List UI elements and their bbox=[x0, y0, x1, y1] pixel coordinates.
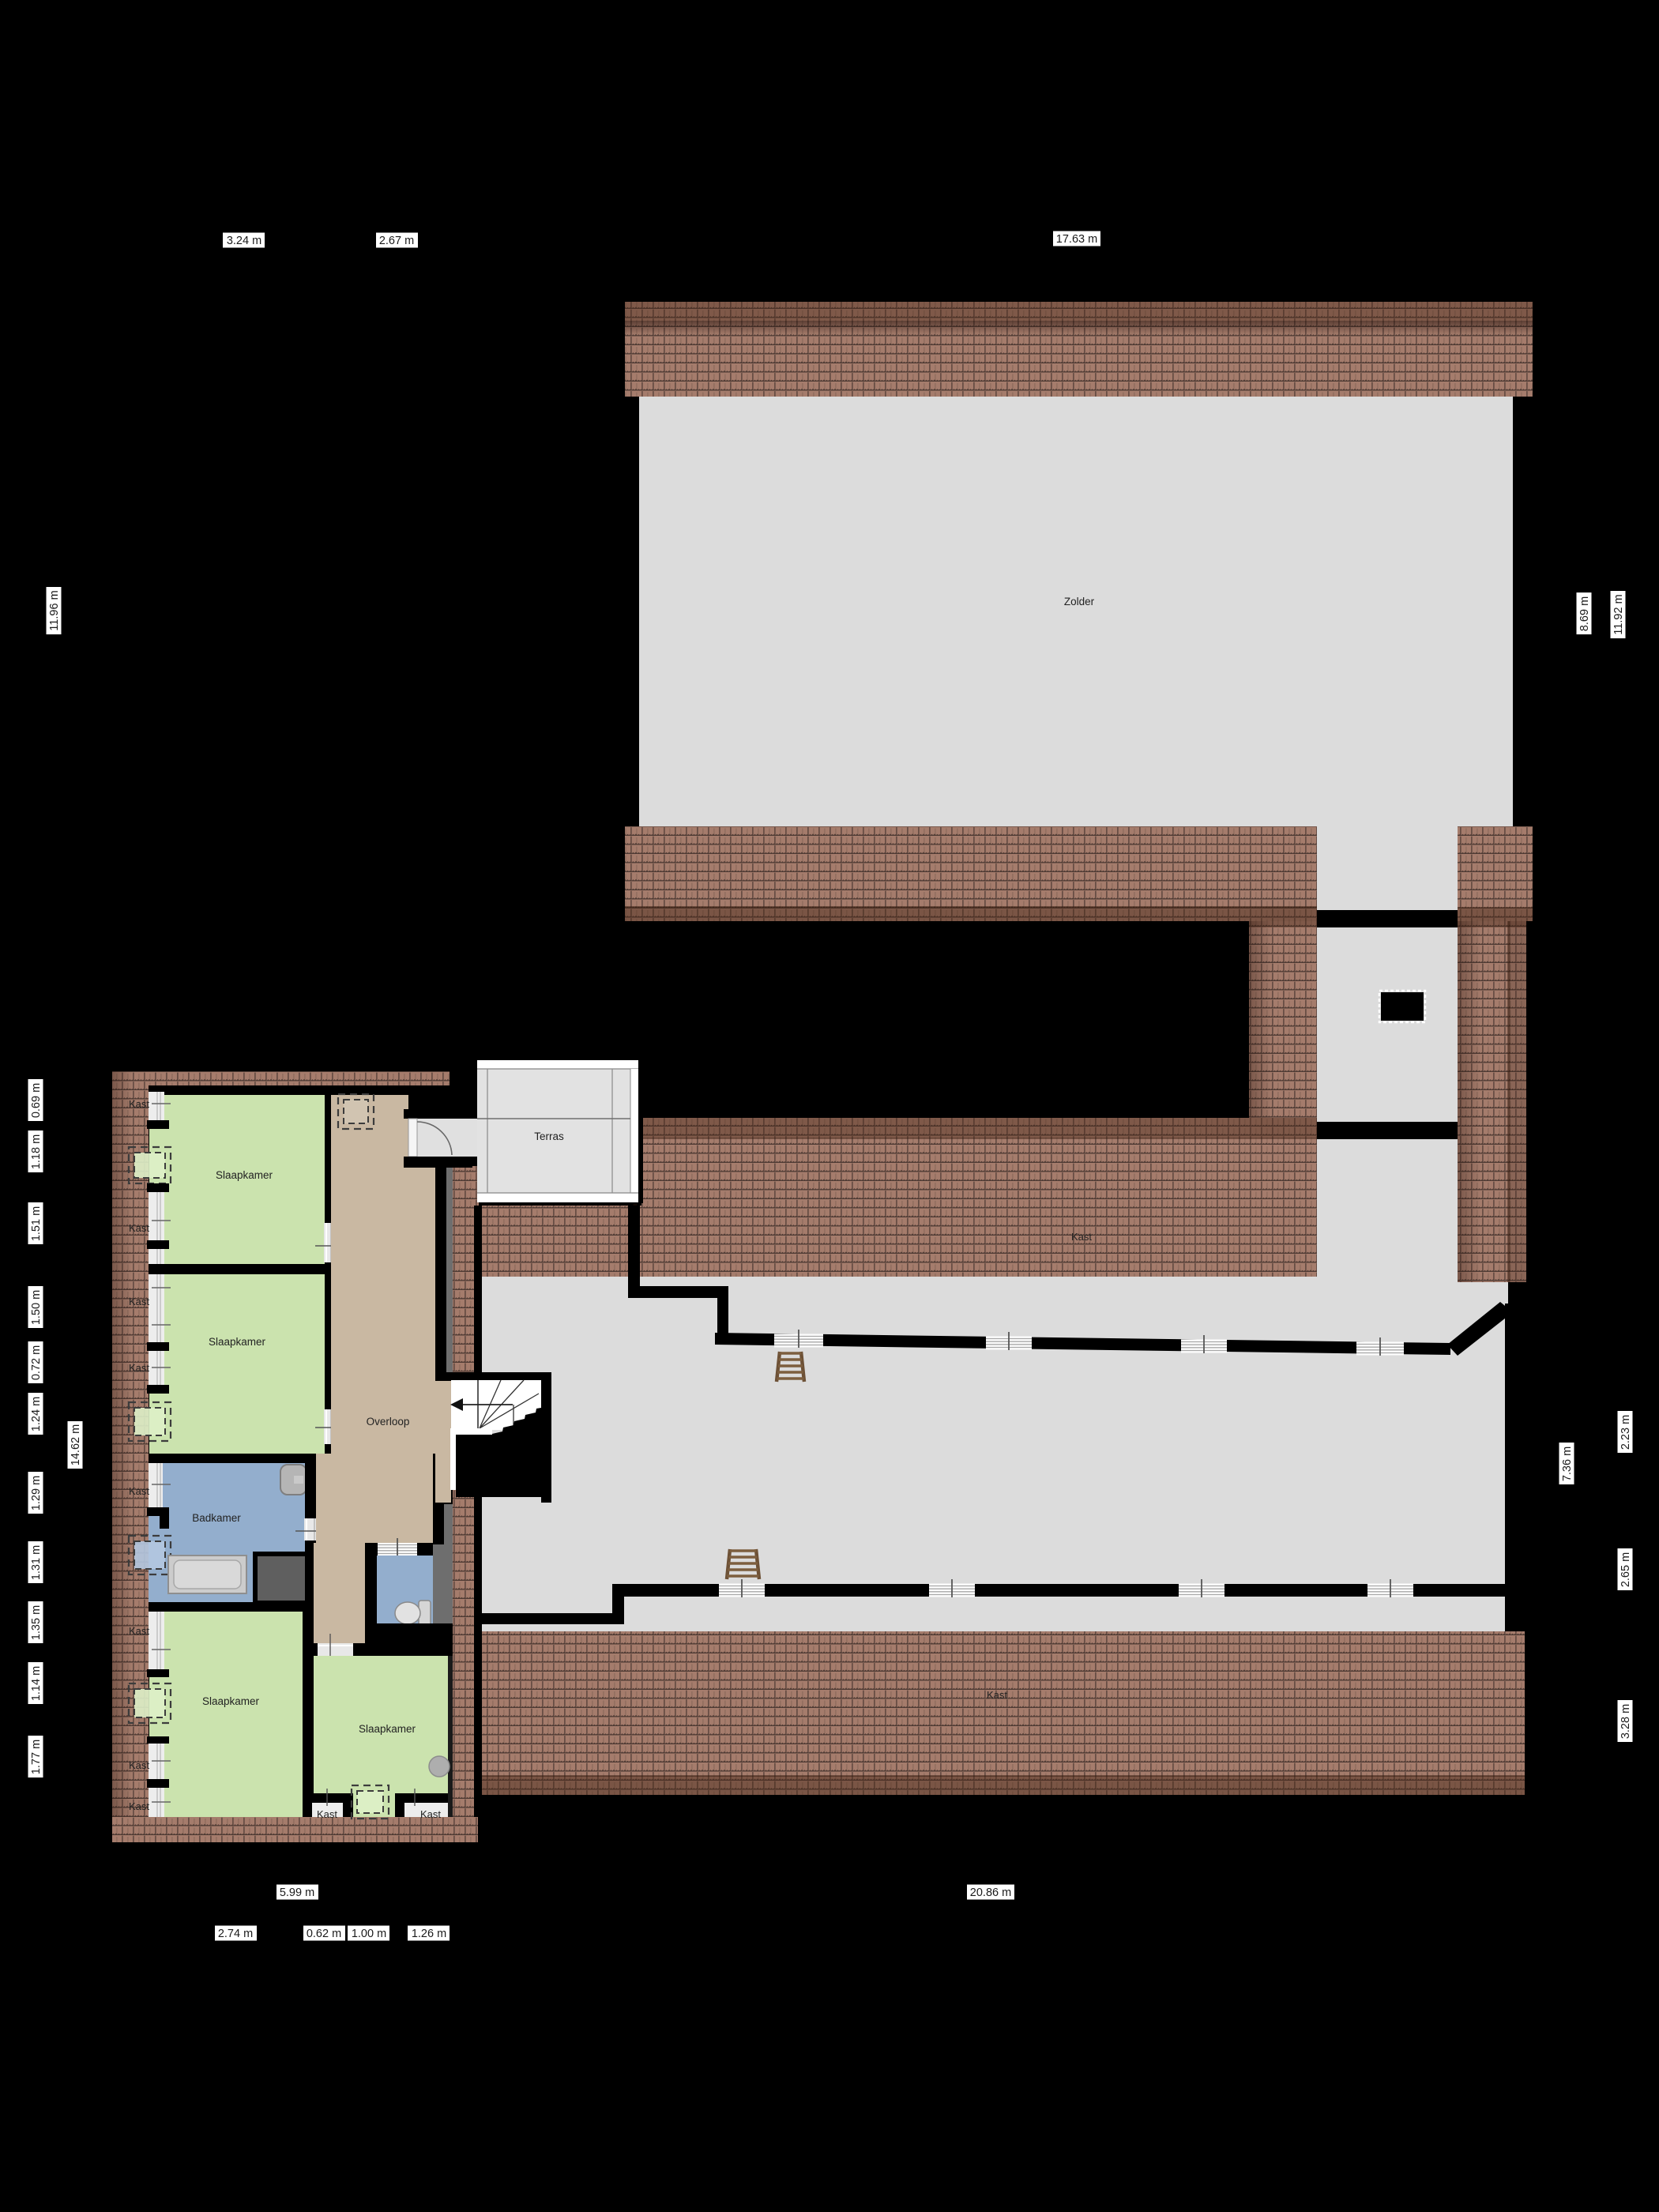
svg-text:Slaapkamer: Slaapkamer bbox=[216, 1169, 273, 1181]
svg-text:Kast: Kast bbox=[129, 1222, 149, 1234]
svg-text:17.63 m: 17.63 m bbox=[1056, 233, 1097, 246]
svg-text:Kast: Kast bbox=[317, 1808, 337, 1820]
svg-text:1.31 m: 1.31 m bbox=[30, 1545, 43, 1580]
svg-text:1.50 m: 1.50 m bbox=[30, 1290, 43, 1325]
svg-text:Terras: Terras bbox=[534, 1130, 564, 1142]
svg-text:Overloop: Overloop bbox=[367, 1416, 410, 1428]
svg-text:2.23 m: 2.23 m bbox=[1619, 1415, 1632, 1450]
svg-text:Kast: Kast bbox=[987, 1689, 1007, 1701]
svg-text:2.67 m: 2.67 m bbox=[379, 235, 414, 247]
svg-text:2.65 m: 2.65 m bbox=[1619, 1552, 1632, 1587]
svg-text:1.77 m: 1.77 m bbox=[30, 1740, 43, 1774]
svg-text:8.69 m: 8.69 m bbox=[1578, 596, 1591, 631]
svg-text:Kast: Kast bbox=[129, 1800, 149, 1812]
svg-text:Slaapkamer: Slaapkamer bbox=[209, 1336, 266, 1348]
svg-text:Slaapkamer: Slaapkamer bbox=[359, 1723, 416, 1735]
svg-text:Kast: Kast bbox=[420, 1808, 441, 1820]
svg-text:1.29 m: 1.29 m bbox=[30, 1476, 43, 1510]
svg-text:7.36 m: 7.36 m bbox=[1561, 1446, 1574, 1481]
svg-text:Kast: Kast bbox=[129, 1485, 149, 1497]
svg-text:Kast: Kast bbox=[129, 1098, 149, 1110]
svg-text:Badkamer: Badkamer bbox=[192, 1512, 241, 1524]
svg-text:1.18 m: 1.18 m bbox=[30, 1134, 43, 1169]
svg-text:3.28 m: 3.28 m bbox=[1619, 1704, 1632, 1739]
svg-text:1.00 m: 1.00 m bbox=[352, 1928, 386, 1940]
svg-text:3.24 m: 3.24 m bbox=[227, 235, 261, 247]
svg-text:11.96 m: 11.96 m bbox=[48, 590, 61, 630]
svg-text:1.26 m: 1.26 m bbox=[412, 1928, 446, 1940]
svg-text:Kast: Kast bbox=[1071, 1231, 1092, 1243]
svg-text:Kast: Kast bbox=[129, 1625, 149, 1637]
svg-text:2.74 m: 2.74 m bbox=[218, 1928, 253, 1940]
svg-text:Kast: Kast bbox=[129, 1362, 149, 1374]
svg-text:5.99 m: 5.99 m bbox=[280, 1887, 314, 1899]
svg-text:Slaapkamer: Slaapkamer bbox=[202, 1695, 260, 1707]
svg-text:20.86 m: 20.86 m bbox=[970, 1887, 1011, 1899]
svg-text:Zolder: Zolder bbox=[1064, 596, 1095, 608]
svg-text:14.62 m: 14.62 m bbox=[70, 1424, 82, 1465]
svg-text:1.24 m: 1.24 m bbox=[30, 1397, 43, 1431]
svg-text:0.72 m: 0.72 m bbox=[30, 1345, 43, 1380]
svg-text:Kast: Kast bbox=[129, 1759, 149, 1771]
svg-text:11.92 m: 11.92 m bbox=[1612, 594, 1625, 634]
svg-text:1.14 m: 1.14 m bbox=[30, 1666, 43, 1701]
svg-text:1.51 m: 1.51 m bbox=[30, 1206, 43, 1241]
svg-text:0.69 m: 0.69 m bbox=[30, 1083, 43, 1118]
svg-text:1.35 m: 1.35 m bbox=[30, 1605, 43, 1640]
svg-text:Kast: Kast bbox=[129, 1296, 149, 1307]
svg-text:0.62 m: 0.62 m bbox=[307, 1928, 341, 1940]
